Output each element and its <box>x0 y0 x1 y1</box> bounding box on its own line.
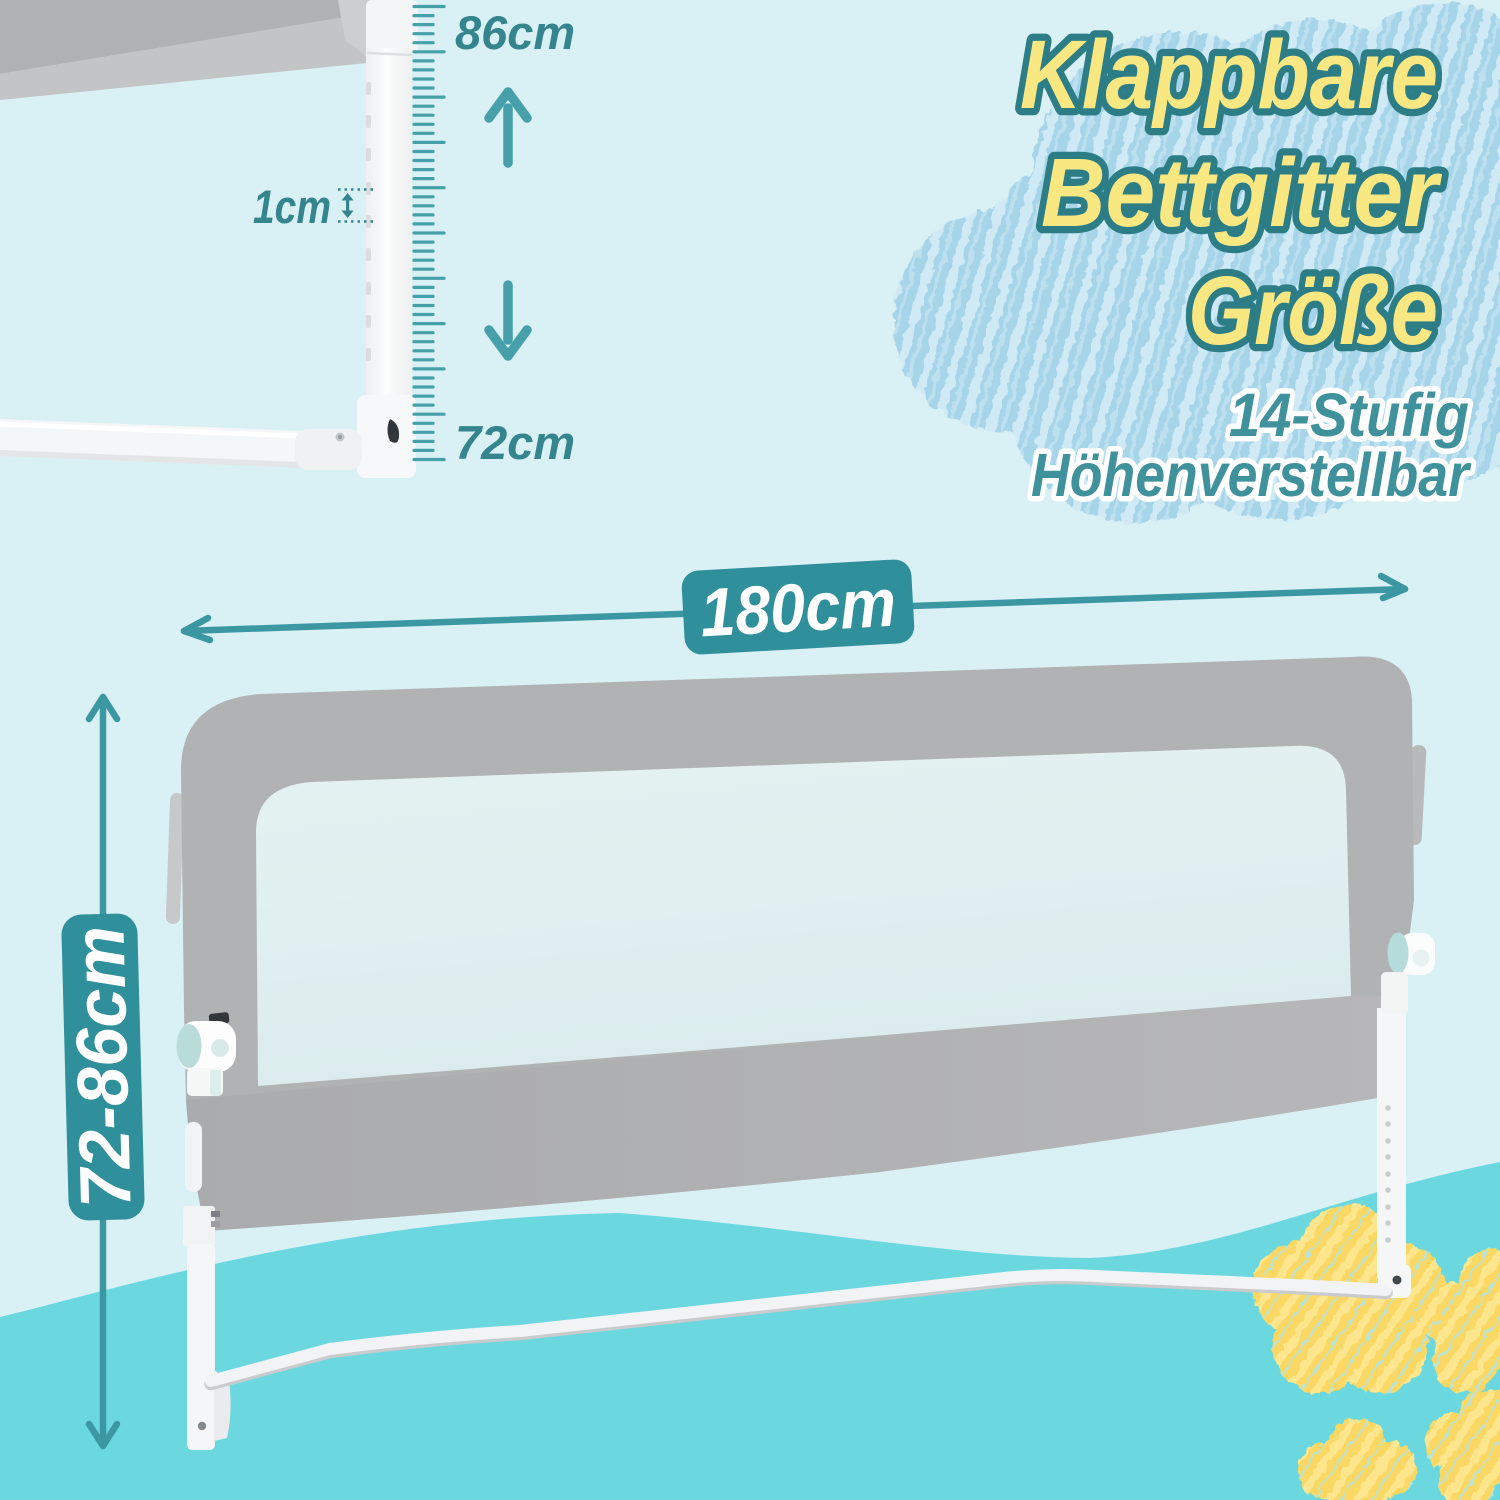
svg-text:Höhenverstellbar: Höhenverstellbar <box>1031 441 1472 509</box>
svg-text:1cm: 1cm <box>253 180 331 233</box>
svg-text:Bettgitter: Bettgitter <box>1041 138 1443 247</box>
svg-text:72-86cm: 72-86cm <box>59 925 146 1209</box>
svg-text:Größe: Größe <box>1188 256 1438 365</box>
svg-text:14-Stufig: 14-Stufig <box>1229 381 1469 449</box>
svg-text:72cm: 72cm <box>455 416 575 469</box>
svg-text:Klappbare: Klappbare <box>1020 20 1438 129</box>
svg-text:180cm: 180cm <box>698 565 898 652</box>
svg-text:86cm: 86cm <box>455 6 575 59</box>
